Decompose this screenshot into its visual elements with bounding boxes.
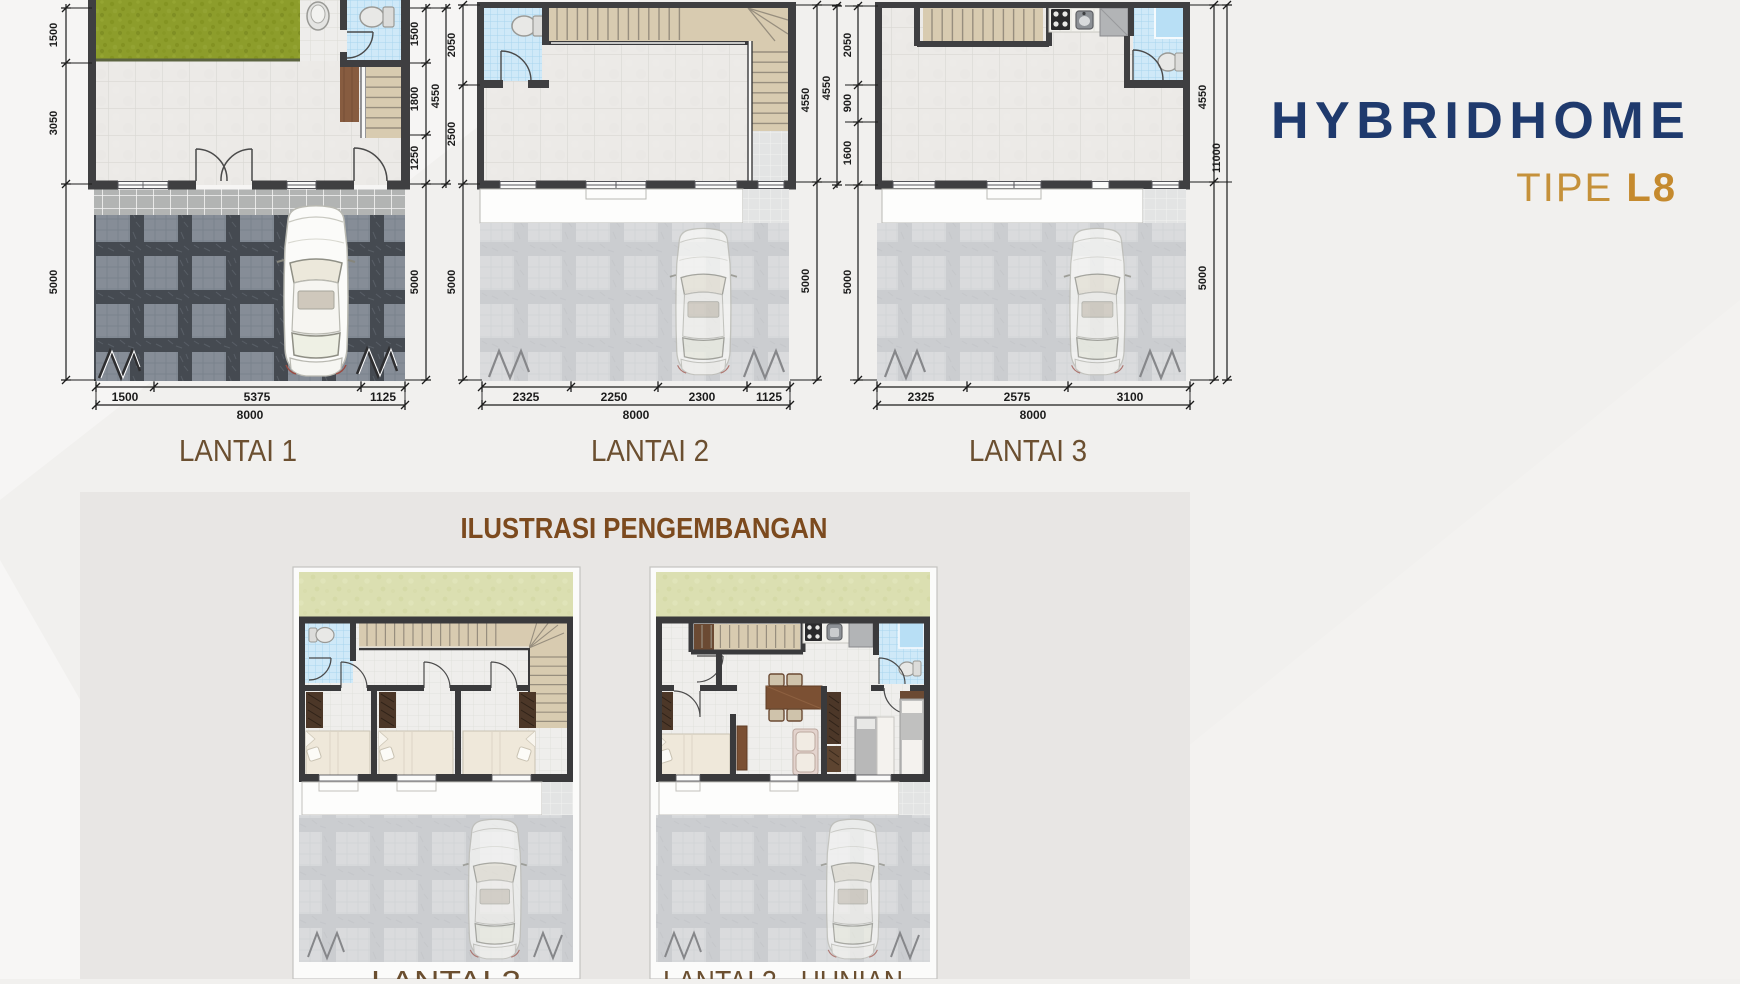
svg-text:2050: 2050: [842, 33, 854, 57]
svg-text:HYBRIDHOME: HYBRIDHOME: [1271, 92, 1691, 150]
svg-text:4550: 4550: [1197, 85, 1209, 109]
svg-text:1800: 1800: [409, 87, 421, 111]
svg-text:LANTAI 2: LANTAI 2: [371, 964, 521, 979]
svg-text:1500: 1500: [48, 23, 60, 47]
svg-text:TIPE L8: TIPE L8: [1516, 166, 1677, 210]
svg-text:2250: 2250: [601, 390, 628, 404]
svg-text:1125: 1125: [370, 390, 396, 404]
svg-text:4550: 4550: [430, 84, 442, 108]
svg-text:900: 900: [842, 94, 854, 112]
svg-text:3100: 3100: [1117, 390, 1144, 404]
svg-text:11000: 11000: [1211, 143, 1223, 173]
svg-text:5000: 5000: [842, 270, 854, 294]
svg-text:8000: 8000: [1020, 408, 1047, 422]
svg-text:2050: 2050: [446, 33, 458, 57]
svg-text:LANTAI 1: LANTAI 1: [179, 433, 297, 468]
svg-text:8000: 8000: [237, 408, 264, 422]
svg-text:8000: 8000: [623, 408, 650, 422]
svg-text:3050: 3050: [48, 111, 60, 135]
svg-text:5000: 5000: [48, 270, 60, 294]
svg-text:1125: 1125: [756, 390, 782, 404]
svg-text:2325: 2325: [908, 390, 935, 404]
svg-text:2500: 2500: [446, 122, 458, 146]
svg-text:1500: 1500: [409, 22, 421, 46]
svg-text:5000: 5000: [409, 270, 421, 294]
svg-text:5000: 5000: [800, 269, 812, 293]
svg-text:1500: 1500: [112, 390, 139, 404]
svg-text:LANTAI 3 - HUNIAN: LANTAI 3 - HUNIAN: [663, 964, 903, 979]
svg-text:2575: 2575: [1004, 390, 1031, 404]
svg-text:2325: 2325: [513, 390, 540, 404]
svg-text:5375: 5375: [244, 390, 271, 404]
svg-text:ILUSTRASI PENGEMBANGAN: ILUSTRASI PENGEMBANGAN: [461, 513, 828, 545]
svg-text:5000: 5000: [1197, 266, 1209, 290]
svg-text:LANTAI 3: LANTAI 3: [969, 433, 1087, 468]
svg-text:LANTAI 2: LANTAI 2: [591, 433, 709, 468]
svg-text:2300: 2300: [689, 390, 716, 404]
svg-text:1600: 1600: [842, 141, 854, 165]
svg-text:1250: 1250: [409, 146, 421, 170]
svg-text:4550: 4550: [821, 76, 833, 100]
svg-text:4550: 4550: [800, 88, 812, 112]
svg-text:5000: 5000: [446, 270, 458, 294]
